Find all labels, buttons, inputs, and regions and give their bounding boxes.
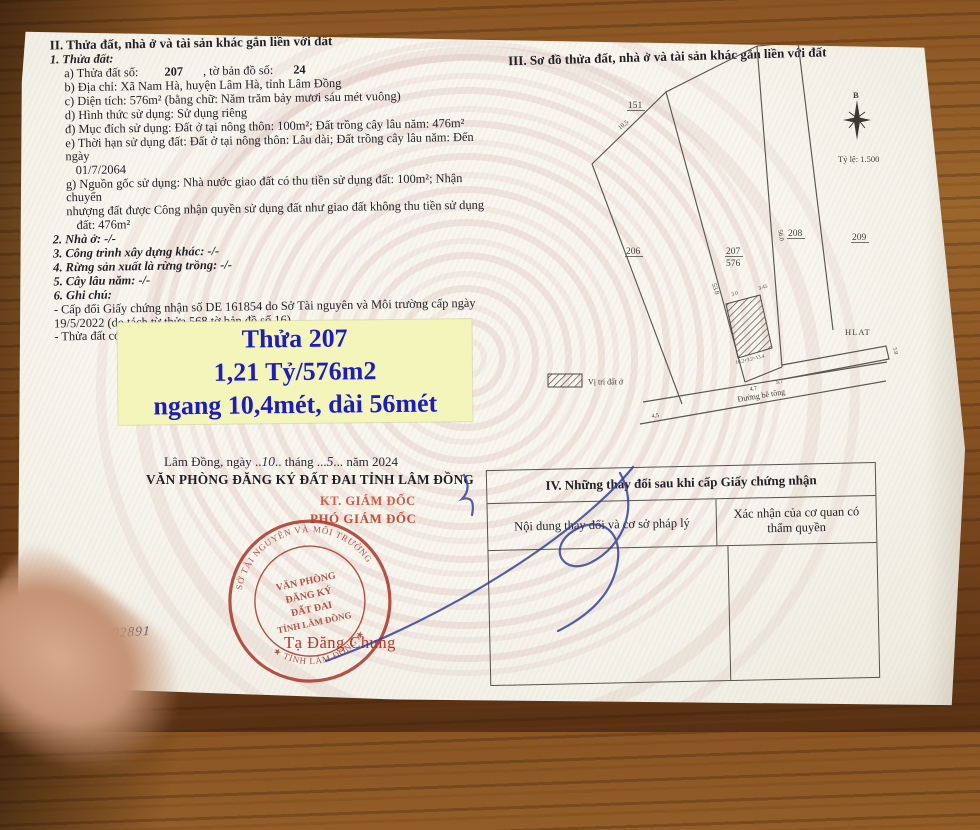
signature-flourish	[558, 473, 628, 631]
compass-north-label: B	[853, 90, 859, 100]
residential-position-hatch	[726, 295, 772, 358]
section-ii-block: II. Thửa đất, nhà ở và tài sản khác gắn …	[50, 32, 497, 344]
parcel-207-area-label: 576	[726, 259, 741, 269]
certificate-paper: II. Thửa đất, nhà ở và tài sản khác gắn …	[18, 20, 965, 712]
measure-right-length: 56.0	[776, 229, 785, 241]
hlat-strip	[782, 346, 889, 379]
price-overlay-box: Thửa 207 1,21 Tỷ/576m2 ngang 10,4mét, dà…	[117, 319, 472, 425]
price-line-amount: 1,21 Tỷ/576m2	[118, 353, 472, 390]
legend-label: Vị trí đất ở	[588, 378, 624, 387]
photo-of-land-certificate: { "colors": { "accent_blue": "#1b1cc4", …	[0, 0, 980, 732]
map-sheet-value: 24	[293, 63, 306, 77]
signature-ky-mark	[462, 475, 473, 515]
parcel-207-label: 207	[726, 247, 741, 257]
ridge-boundary-line	[592, 34, 885, 164]
parcel-number-value: 207	[164, 65, 183, 79]
measure-hatch-b: 3.45	[758, 283, 769, 292]
parcel-206-label: 206	[626, 247, 641, 257]
parcel-209-label: 209	[852, 233, 867, 243]
hlat-label: HLAT	[845, 327, 871, 337]
measure-road-width: 4.5	[651, 413, 659, 420]
measure-bottom-2: 5.7	[775, 379, 783, 386]
column-header-authority: Xác nhận của cơ quan có thẩm quyền	[717, 496, 877, 545]
ink-signature	[268, 445, 668, 680]
road-label: Đường bê tông	[737, 387, 786, 404]
parcel-206-left-line	[592, 164, 682, 404]
compass-rose-icon: B Tỷ lệ: 1.500	[838, 90, 879, 164]
scale-label: Tỷ lệ: 1.500	[838, 154, 879, 164]
parcel-208-label: 208	[788, 229, 803, 239]
road-bottom-line	[640, 381, 886, 424]
parcel-208-right-line	[798, 42, 833, 330]
cadastral-sketch: 151 206 207 576 208 209 10.5 53.8 56.0 3…	[540, 32, 960, 432]
parcel-207-left-line	[666, 92, 745, 382]
measure-top-width: 10.5	[617, 119, 630, 132]
measure-hatch-a: 3.0	[731, 290, 739, 298]
price-line-dimensions: ngang 10,4mét, dài 56mét	[118, 386, 472, 423]
price-line-parcel: Thửa 207	[117, 320, 471, 357]
parcel-151-label: 151	[628, 101, 643, 111]
measure-hlat-end: 5.0	[891, 347, 899, 355]
legend-hatch-swatch	[548, 374, 582, 387]
